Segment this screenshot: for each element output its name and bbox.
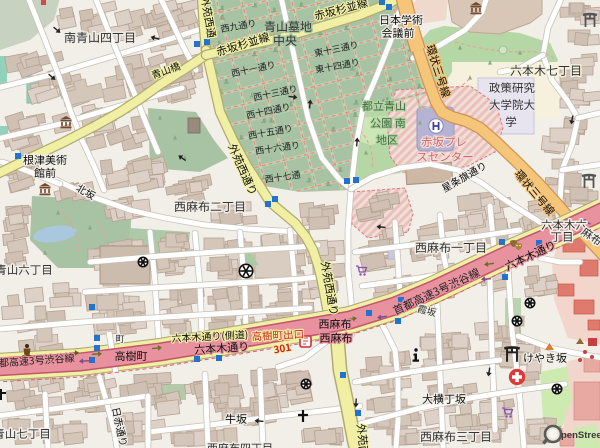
svg-text:penStreetMap: penStreetMap — [561, 430, 600, 441]
